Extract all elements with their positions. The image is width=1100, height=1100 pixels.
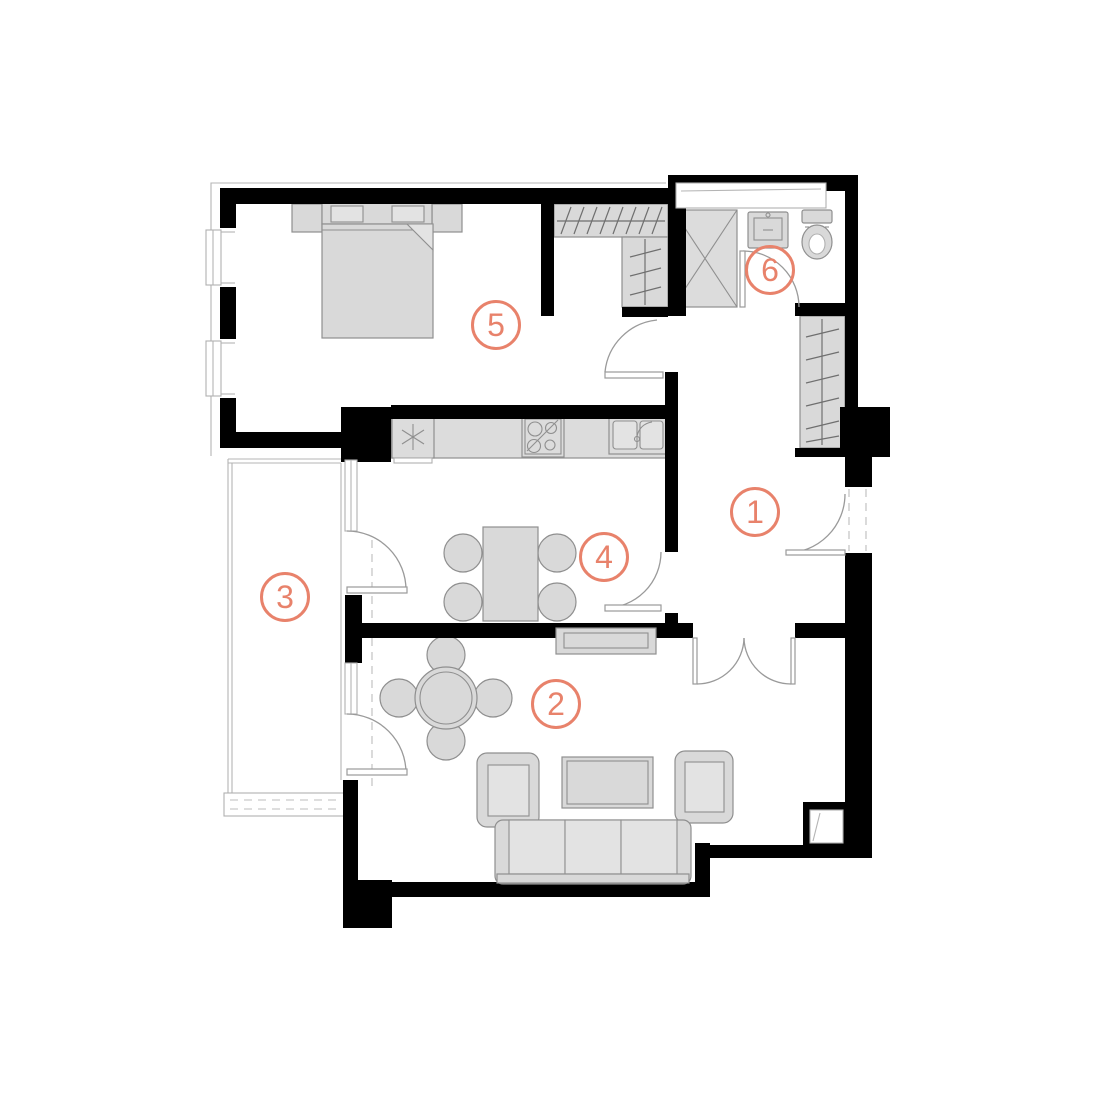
room-marker-bathroom[interactable]: 6 [745,245,795,295]
round-table-set [380,636,512,760]
chair-icon [474,679,512,717]
double-door-swing-icon [693,638,795,684]
chair-icon [444,534,482,572]
dining-table-icon [483,527,538,621]
closet-side-hangers [622,237,668,307]
toilet-icon [802,210,832,259]
fridge-icon [392,416,434,463]
chair-icon [444,583,482,621]
room-marker-bedroom[interactable]: 5 [471,300,521,350]
wall-niche [810,810,843,843]
round-table-icon [415,667,477,729]
room-marker-balcony[interactable]: 3 [260,572,310,622]
balcony-door-swing-icon [347,714,407,775]
entrance-door-swing-icon [786,489,866,555]
window-icon [206,341,235,396]
balcony-railing [224,793,345,816]
room-marker-kitchen[interactable]: 4 [579,532,629,582]
washbasin-icon [748,212,788,248]
kitchen-counter [391,415,667,463]
dining-set [444,527,576,621]
sofa-icon [495,820,691,884]
bed [292,202,462,338]
room-marker-hallway[interactable]: 1 [730,487,780,537]
bathroom-window [676,183,826,208]
pillow-icon [331,206,363,222]
chair-icon [538,534,576,572]
armchair-icon [477,753,539,827]
nightstand-right [432,204,462,232]
hall-wardrobe-hangers [800,316,845,448]
tv-stand-icon [556,628,656,654]
floor-plan-drawing [0,0,1100,1100]
chair-icon [538,583,576,621]
closet-top-hangers [554,204,668,237]
room-marker-living-room[interactable]: 2 [531,679,581,729]
kitchen-sink-icon [609,417,667,454]
floor-plan: 1 2 3 4 5 6 [0,0,1100,1100]
bedroom-door-swing-icon [605,320,663,378]
armchair-icon [675,751,733,823]
chair-icon [380,679,418,717]
balcony-door-swing-icon [347,531,407,593]
stove-icon [522,416,564,457]
pillow-icon [392,206,424,222]
nightstand-left [292,204,322,232]
coffee-table-icon [562,757,653,808]
window-icon [206,230,235,285]
